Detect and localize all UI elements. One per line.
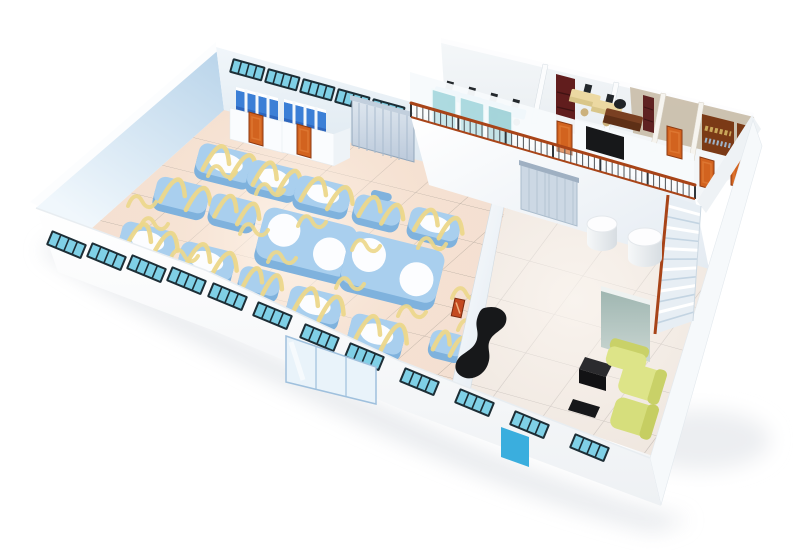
floor-plan-illustration — [0, 0, 800, 550]
floor-plan-svg — [0, 0, 800, 550]
restroom-door — [297, 124, 311, 158]
stair-step — [661, 268, 697, 270]
round-table — [628, 228, 662, 267]
side-cabinet — [643, 95, 654, 133]
round-table — [587, 216, 617, 251]
restroom-door — [249, 112, 263, 146]
stair-step — [663, 248, 698, 250]
office-chair — [614, 99, 626, 109]
